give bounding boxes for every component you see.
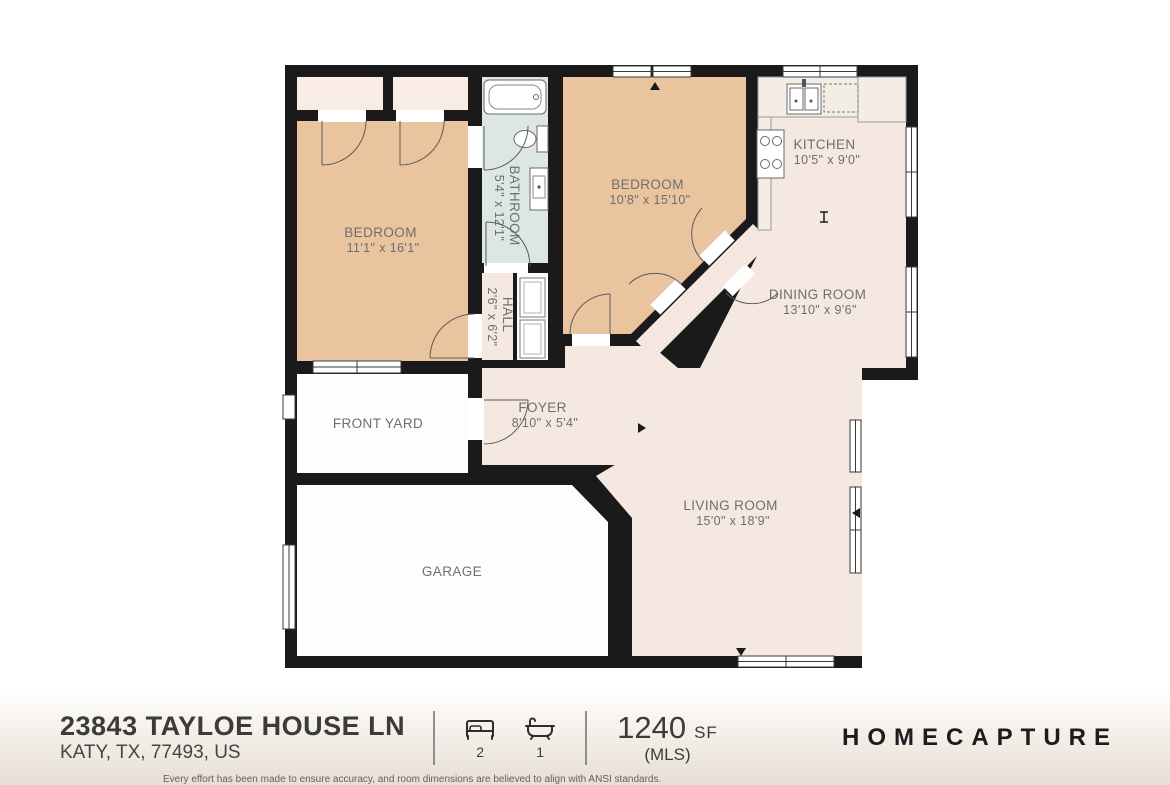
hall: HALL 2'6" x 6'2" (482, 273, 516, 360)
toilet-tank (537, 126, 548, 152)
disclaimer-text: Every effort has been made to ensure acc… (163, 774, 661, 785)
dining-room-label: DINING ROOM 13'10" x 9'6" (769, 286, 871, 317)
hall-closet (517, 273, 548, 360)
toilet-bowl (514, 131, 536, 148)
yard-opening (283, 395, 295, 419)
beds-count: 2 (476, 744, 484, 760)
beds-stat: 2 (463, 715, 497, 760)
bathroom-label: BATHROOM 5'4" x 12'1" (492, 165, 523, 250)
kitchen-counter-corner (858, 77, 906, 122)
baths-stat: 1 (523, 715, 557, 760)
bathroom: BATHROOM 5'4" x 12'1" (482, 77, 548, 263)
bedroom-2-label: BEDROOM 10'8" x 15'10" (609, 176, 690, 207)
address-block: 23843 TAYLOE HOUSE LN KATY, TX, 77493, U… (60, 712, 405, 763)
area-source: (MLS) (644, 746, 690, 763)
kitchen-faucet (802, 79, 806, 87)
vanity-faucet (537, 185, 540, 188)
stats-block: 2 1 (463, 715, 557, 760)
foyer-label: FOYER 8'10" x 5'4" (512, 399, 578, 430)
living-room-label: LIVING ROOM 15'0" x 18'9" (683, 497, 782, 528)
living-room: LIVING ROOM 15'0" x 18'9" (596, 368, 862, 656)
homecapture-logo: HOMECAPTURE (842, 724, 1118, 752)
garage: GARAGE (297, 485, 608, 656)
divider (433, 711, 435, 765)
area-block: 1240 SF (MLS) (617, 712, 718, 763)
floor-plan: BEDROOM 11'1" x 16'1" BATHROOM 5'4" x 12… (0, 0, 1170, 700)
divider (585, 711, 587, 765)
closet-a-area (297, 77, 383, 110)
closet-b-area (393, 77, 468, 110)
address-line1: 23843 TAYLOE HOUSE LN (60, 712, 405, 740)
front-yard: FRONT YARD (297, 374, 468, 473)
front-yard-label: FRONT YARD (333, 416, 423, 431)
footer-bar: 23843 TAYLOE HOUSE LN KATY, TX, 77493, U… (0, 690, 1170, 785)
bath-icon (523, 715, 557, 741)
address-line2: KATY, TX, 77493, US (60, 743, 405, 763)
garage-label: GARAGE (422, 564, 482, 579)
bedroom-1-label: BEDROOM 11'1" x 16'1" (344, 224, 421, 255)
area-value: 1240 (617, 712, 686, 743)
area-unit: SF (694, 724, 718, 741)
bedroom-1: BEDROOM 11'1" x 16'1" (297, 121, 468, 361)
kitchen-label: KITCHEN 10'5" x 9'0" (794, 136, 861, 167)
bed-icon (463, 715, 497, 741)
page: BEDROOM 11'1" x 16'1" BATHROOM 5'4" x 12… (0, 0, 1170, 785)
baths-count: 1 (536, 744, 544, 760)
